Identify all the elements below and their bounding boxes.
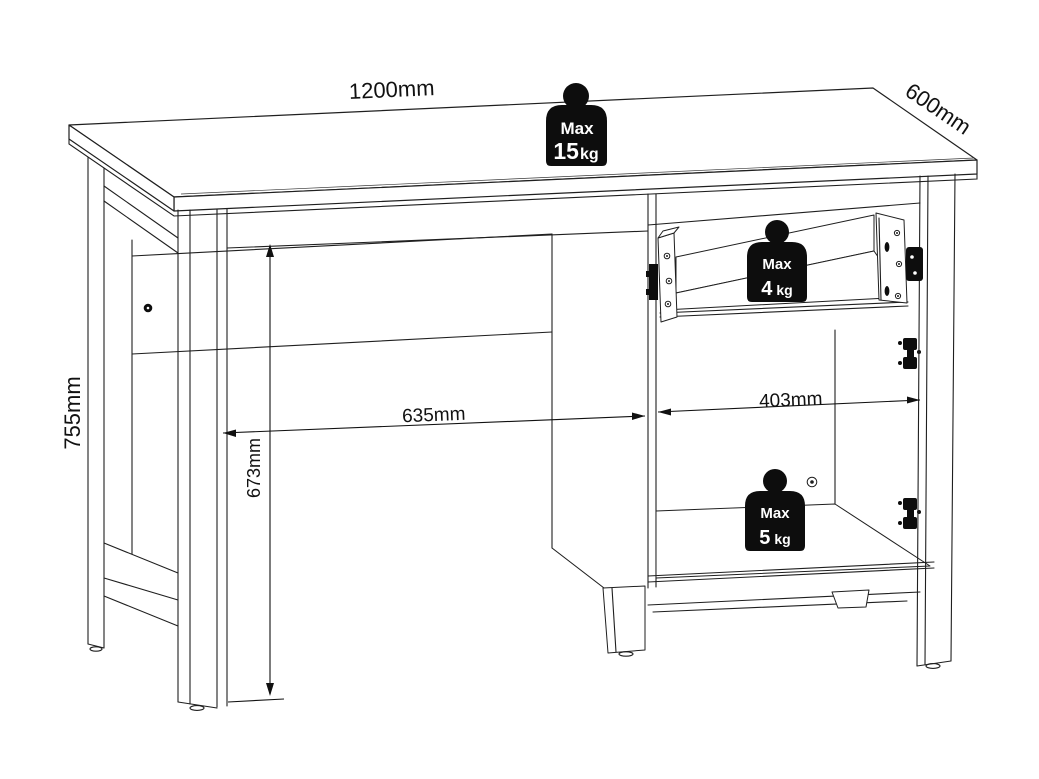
dimension-knee-width-label: 635mm (402, 404, 466, 428)
max-value: 5 (759, 527, 770, 549)
weight-icon-desktop: Max 15kg (546, 83, 607, 166)
desk-line-drawing: Max 15kg Max 4kg Max 5kg 1200mm 600mm 75… (0, 0, 1039, 779)
dimension-cabinet-width: 403mm (658, 389, 920, 416)
cabinet-leg (603, 586, 645, 653)
svg-text:4kg: 4kg (761, 278, 792, 300)
desktop (69, 88, 977, 216)
left-leg-frame (88, 157, 227, 710)
arrow-left (223, 430, 236, 438)
technical-drawing-canvas: Max 15kg Max 4kg Max 5kg 1200mm 600mm 75… (0, 0, 1039, 779)
drawer-slide-left (646, 227, 679, 322)
max-value: 4 (761, 278, 773, 300)
right-leg (917, 174, 955, 668)
dimension-knee-width: 635mm (223, 404, 645, 437)
arrow-left (658, 409, 671, 416)
max-value: 15 (553, 138, 579, 164)
dimension-height-label: 755mm (60, 376, 85, 449)
dimension-width: 1200mm (348, 75, 435, 104)
door-hinge-top (898, 338, 921, 369)
dimension-width-label: 1200mm (348, 75, 435, 104)
dimension-knee-height-label: 673mm (244, 438, 264, 498)
dimension-knee-height: 673mm (228, 244, 284, 702)
drawer-slide-right (876, 213, 923, 303)
max-unit: kg (774, 531, 790, 547)
arrow-right (907, 397, 920, 404)
max-unit: kg (776, 282, 792, 298)
modesty-panel (132, 231, 648, 588)
dimension-cabinet-width-label: 403mm (759, 389, 823, 413)
weight-icon-cabinet: Max 5kg (745, 469, 805, 551)
middle-divider-panel (648, 194, 656, 588)
dimension-height: 755mm (60, 376, 85, 449)
arrow-right (632, 413, 645, 421)
max-label: Max (560, 119, 594, 138)
svg-text:5kg: 5kg (759, 527, 790, 549)
cabinet-foot (832, 590, 869, 608)
max-label: Max (760, 505, 790, 522)
max-unit: kg (580, 146, 599, 163)
arrow-down (266, 683, 274, 696)
max-label: Max (762, 256, 792, 273)
